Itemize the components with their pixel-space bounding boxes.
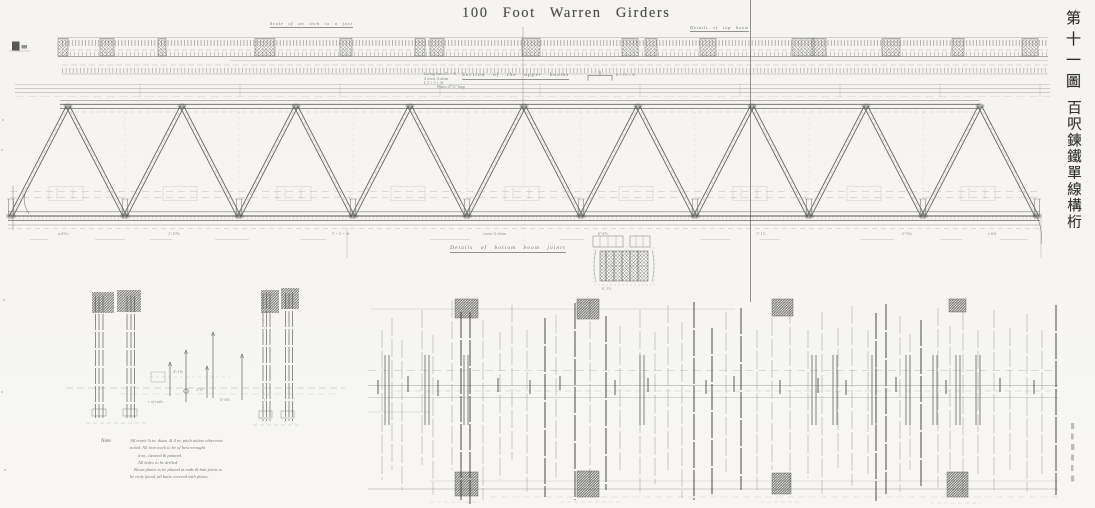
truss-elevation [6,100,1042,258]
bottom-boom-plan [30,228,1028,258]
colophon-marks [1071,423,1074,482]
deck-plan-detail [368,299,1058,504]
stamp-speck [1,42,30,471]
cross-section-detail [66,288,345,425]
engineering-drawing-linework [0,0,1095,508]
drawing-sheet: 100 Foot Warren Girders Scale of an inch… [0,0,1095,508]
top-boom-plan [58,38,1048,75]
bottom-joint-detail [593,236,654,285]
upper-boom-section [15,71,1050,97]
